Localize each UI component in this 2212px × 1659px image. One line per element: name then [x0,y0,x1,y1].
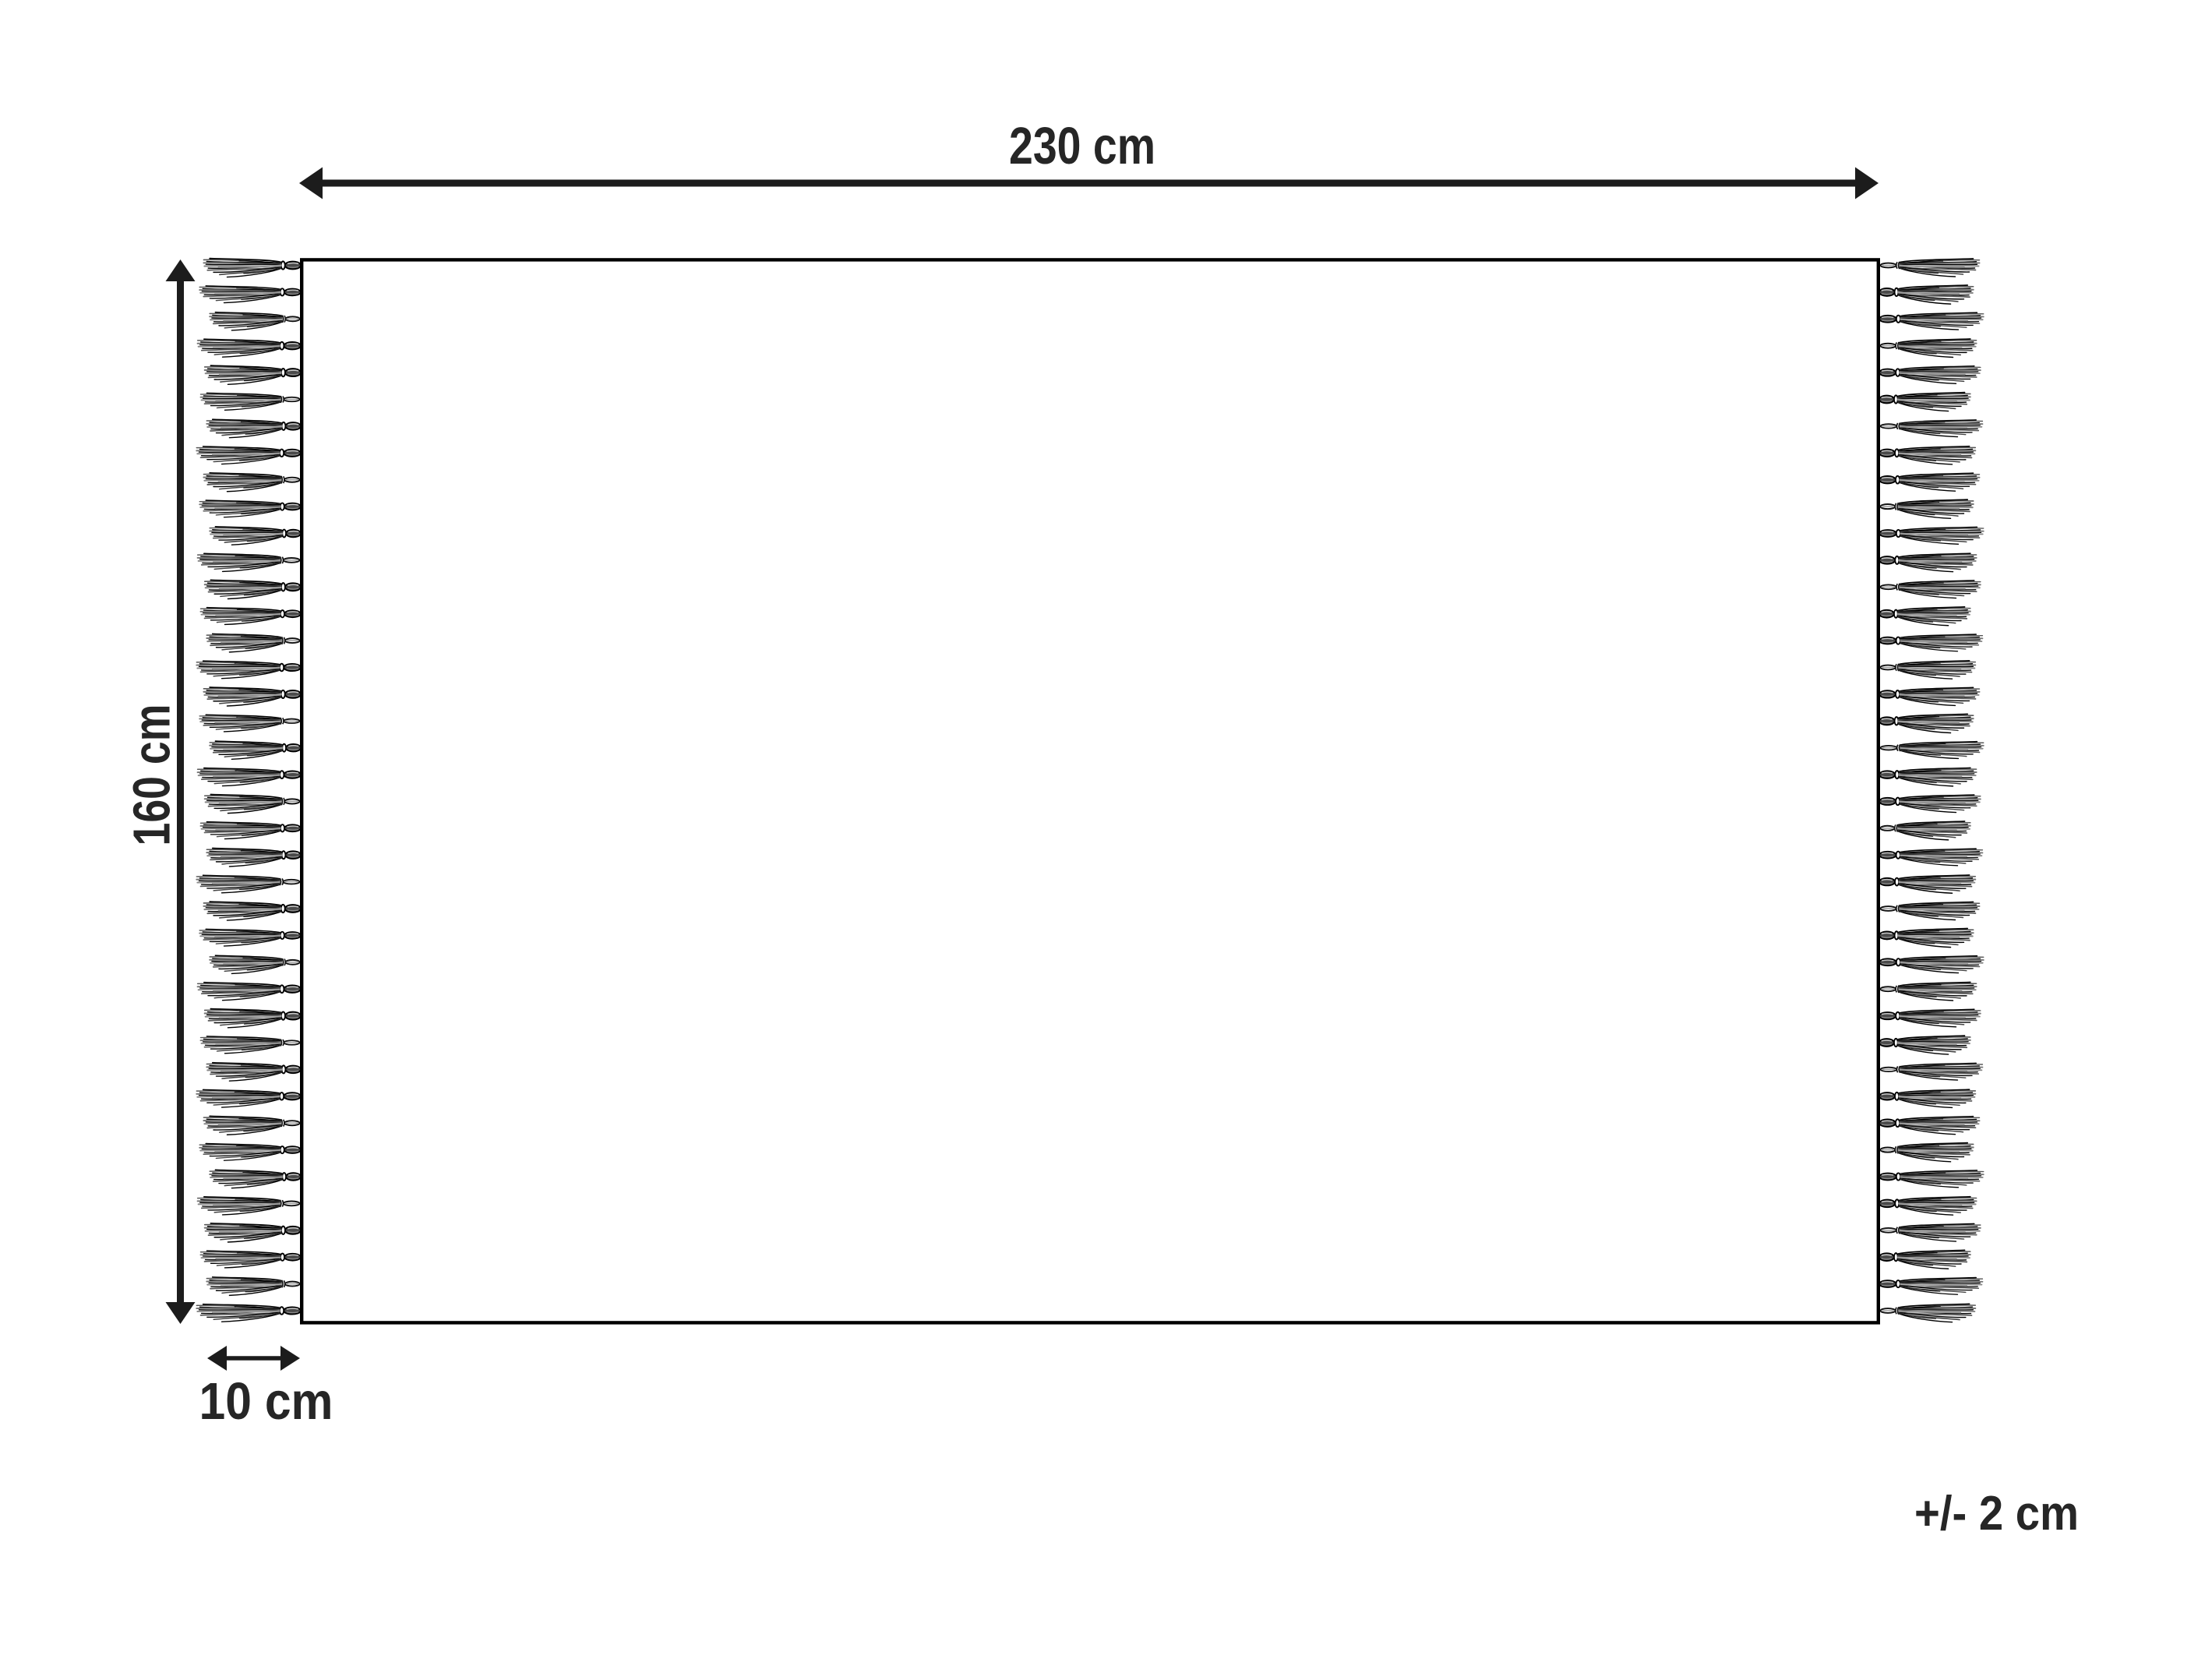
svg-text:160 cm: 160 cm [123,704,182,846]
svg-text:230 cm: 230 cm [1009,117,1155,175]
svg-text:+/- 2 cm: +/- 2 cm [1914,1487,2079,1541]
svg-text:10 cm: 10 cm [199,1372,333,1431]
